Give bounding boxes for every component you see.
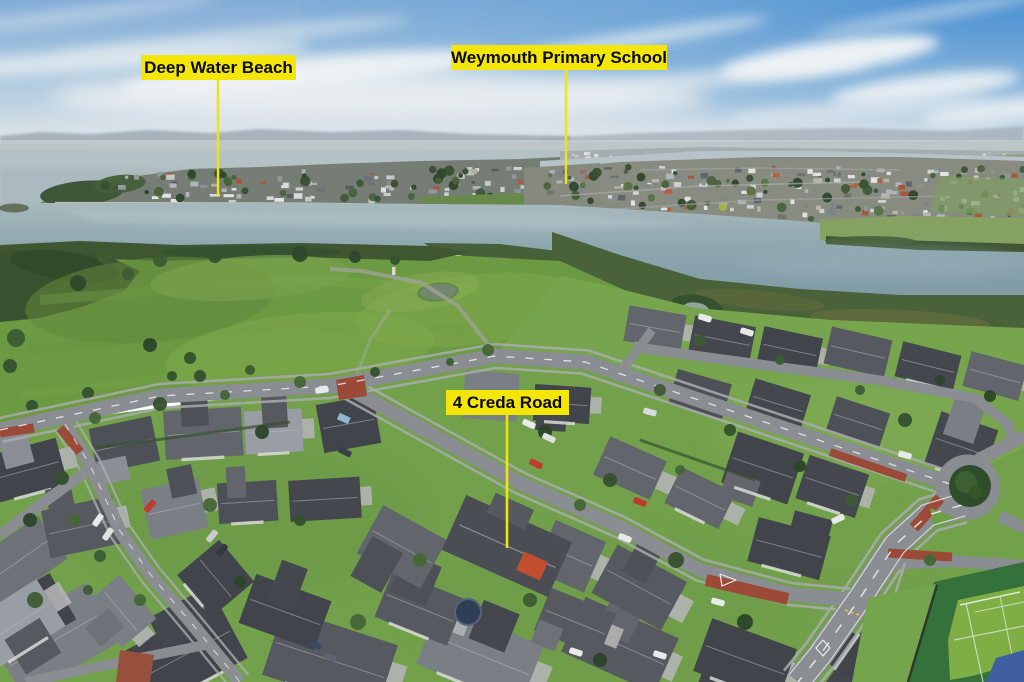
svg-text:4 Creda Road: 4 Creda Road xyxy=(453,393,563,412)
svg-text:Deep Water Beach: Deep Water Beach xyxy=(144,58,293,77)
svg-text:Weymouth Primary School: Weymouth Primary School xyxy=(451,48,667,67)
